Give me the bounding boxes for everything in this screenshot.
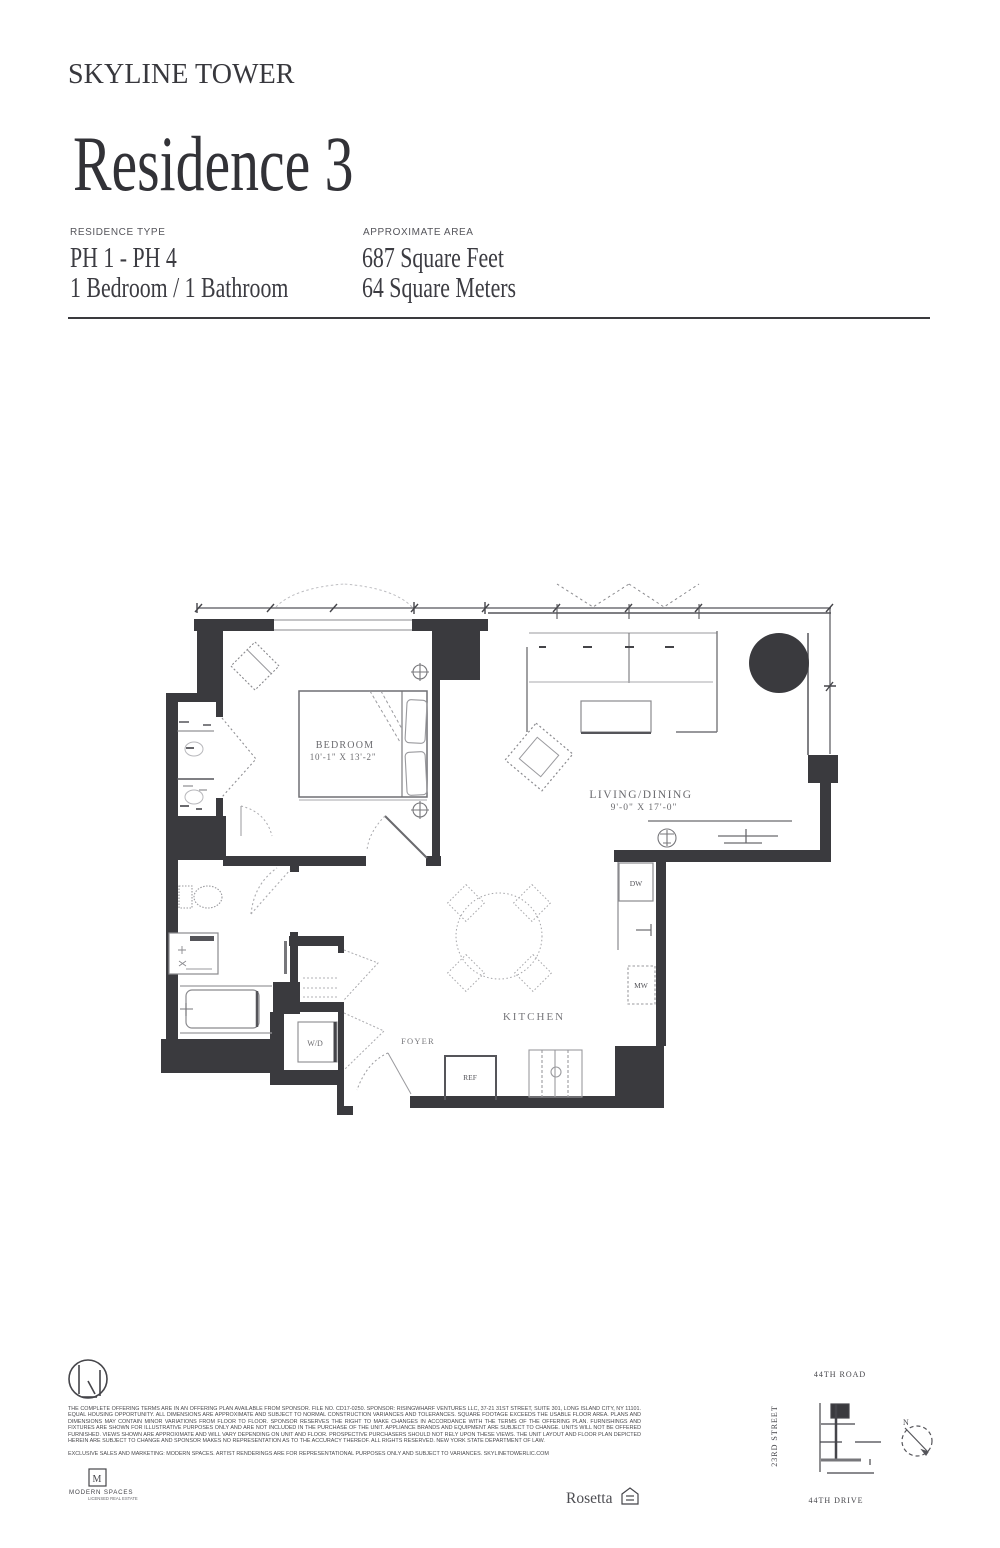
svg-text:23RD STREET: 23RD STREET (770, 1405, 779, 1466)
svg-text:MW: MW (634, 981, 649, 990)
svg-text:44TH ROAD: 44TH ROAD (814, 1370, 866, 1379)
svg-text:Rosetta: Rosetta (566, 1490, 613, 1507)
svg-text:W/D: W/D (307, 1039, 323, 1048)
svg-text:44TH DRIVE: 44TH DRIVE (808, 1496, 863, 1505)
svg-text:BEDROOM: BEDROOM (316, 740, 374, 751)
svg-text:M: M (93, 1474, 102, 1485)
svg-text:DW: DW (630, 879, 643, 888)
svg-text:10'-1" X 13'-2": 10'-1" X 13'-2" (310, 752, 377, 762)
svg-text:KITCHEN: KITCHEN (503, 1011, 565, 1023)
svg-text:REF: REF (463, 1073, 477, 1082)
svg-text:FOYER: FOYER (401, 1036, 435, 1046)
svg-text:9'-0" X 17'-0": 9'-0" X 17'-0" (611, 803, 678, 813)
svg-text:N: N (903, 1418, 909, 1427)
svg-text:LIVING/DINING: LIVING/DINING (589, 789, 692, 801)
